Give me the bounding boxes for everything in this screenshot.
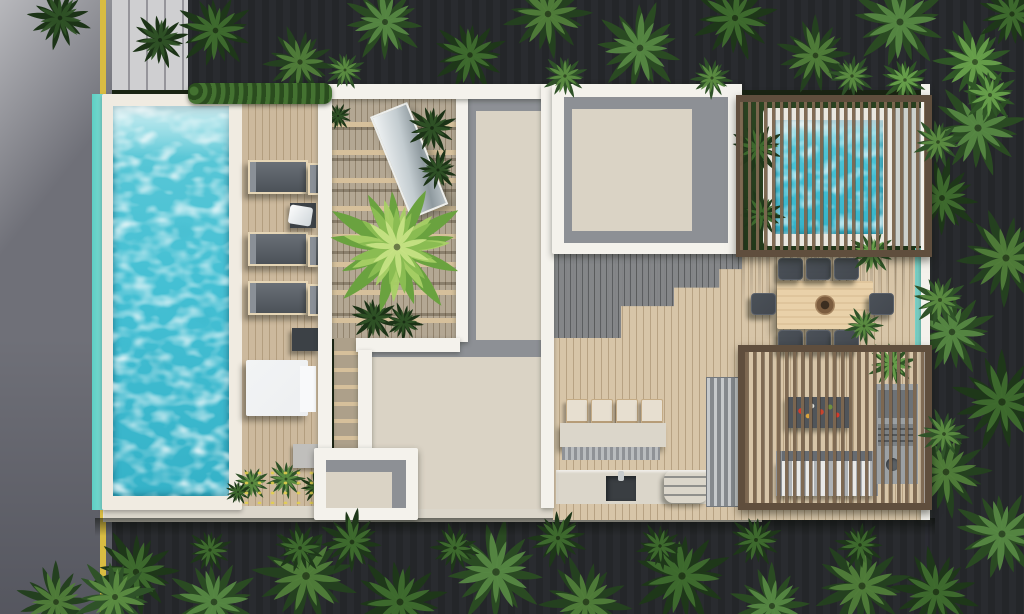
- floor-grate: [562, 447, 660, 460]
- paver-ground-right: [925, 0, 1024, 614]
- faucet: [618, 471, 624, 481]
- sun-lounger: [248, 160, 308, 194]
- sun-lounger: [248, 232, 308, 266]
- hedge: [188, 83, 332, 104]
- dining-chair: [869, 293, 894, 315]
- dining-chair: [778, 258, 803, 280]
- small-roof-block: [314, 448, 418, 520]
- pergola-lounge-slats: [738, 345, 932, 510]
- concrete-roof-strip: [476, 111, 542, 342]
- villa-rooftop-render: Photorealistic top-down rendering of a t…: [0, 0, 1024, 614]
- paver-ground-top: [185, 0, 930, 90]
- bar-stool: [641, 399, 663, 425]
- courtyard-frame-left: [318, 84, 332, 460]
- ladder-frame-right: [358, 350, 372, 460]
- courtyard-deck: [332, 99, 456, 339]
- bar-stool: [616, 399, 638, 425]
- roof-slab: [572, 109, 692, 231]
- daybed: [246, 360, 308, 416]
- dining-chair: [834, 258, 859, 280]
- sidewalk: [112, 0, 188, 90]
- pool-water: [113, 106, 229, 496]
- towel: [288, 204, 314, 226]
- bbq-grill: [664, 470, 708, 503]
- edge-shadow: [95, 518, 935, 536]
- pool: [102, 94, 242, 510]
- small-roof-slab: [326, 472, 392, 508]
- table-centerpiece: [815, 295, 835, 315]
- deck-mat: [292, 328, 320, 351]
- bar-counter: [560, 423, 666, 447]
- water-reflection: [113, 106, 229, 166]
- daybed-sheet: [300, 366, 316, 412]
- sun-lounger: [248, 281, 308, 315]
- dining-chair: [806, 258, 831, 280]
- dining-chair: [751, 293, 776, 315]
- roof-block-topright: [552, 84, 742, 254]
- bar-stool: [566, 399, 588, 425]
- pergola-jacuzzi-slats: [736, 95, 932, 257]
- ladder-walk: [334, 338, 358, 460]
- courtyard-frame-right: [456, 84, 468, 342]
- bar-stool: [591, 399, 613, 425]
